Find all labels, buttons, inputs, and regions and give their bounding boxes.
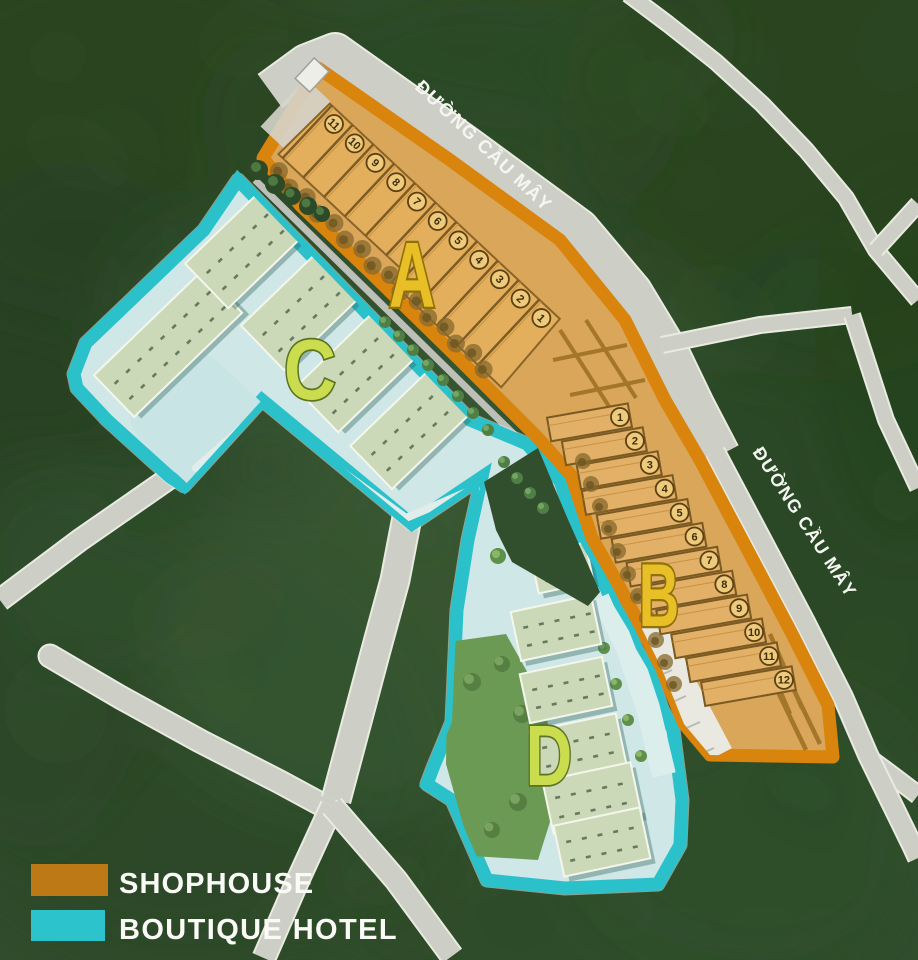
svg-text:11: 11	[763, 651, 775, 663]
svg-text:9: 9	[736, 603, 742, 615]
svg-text:5: 5	[677, 507, 683, 519]
svg-text:12: 12	[778, 675, 790, 687]
svg-text:A: A	[389, 223, 435, 327]
svg-text:2: 2	[632, 436, 638, 448]
svg-text:1: 1	[617, 412, 623, 424]
svg-text:10: 10	[748, 627, 760, 639]
svg-text:B: B	[639, 546, 679, 645]
svg-text:D: D	[526, 708, 573, 803]
svg-text:SHOPHOUSE: SHOPHOUSE	[119, 868, 314, 900]
svg-text:BOUTIQUE HOTEL: BOUTIQUE HOTEL	[119, 914, 398, 946]
svg-text:4: 4	[662, 484, 669, 496]
svg-text:C: C	[284, 322, 336, 417]
svg-text:3: 3	[647, 460, 653, 472]
svg-text:7: 7	[706, 555, 712, 567]
svg-text:8: 8	[721, 579, 727, 591]
svg-text:6: 6	[691, 531, 697, 543]
